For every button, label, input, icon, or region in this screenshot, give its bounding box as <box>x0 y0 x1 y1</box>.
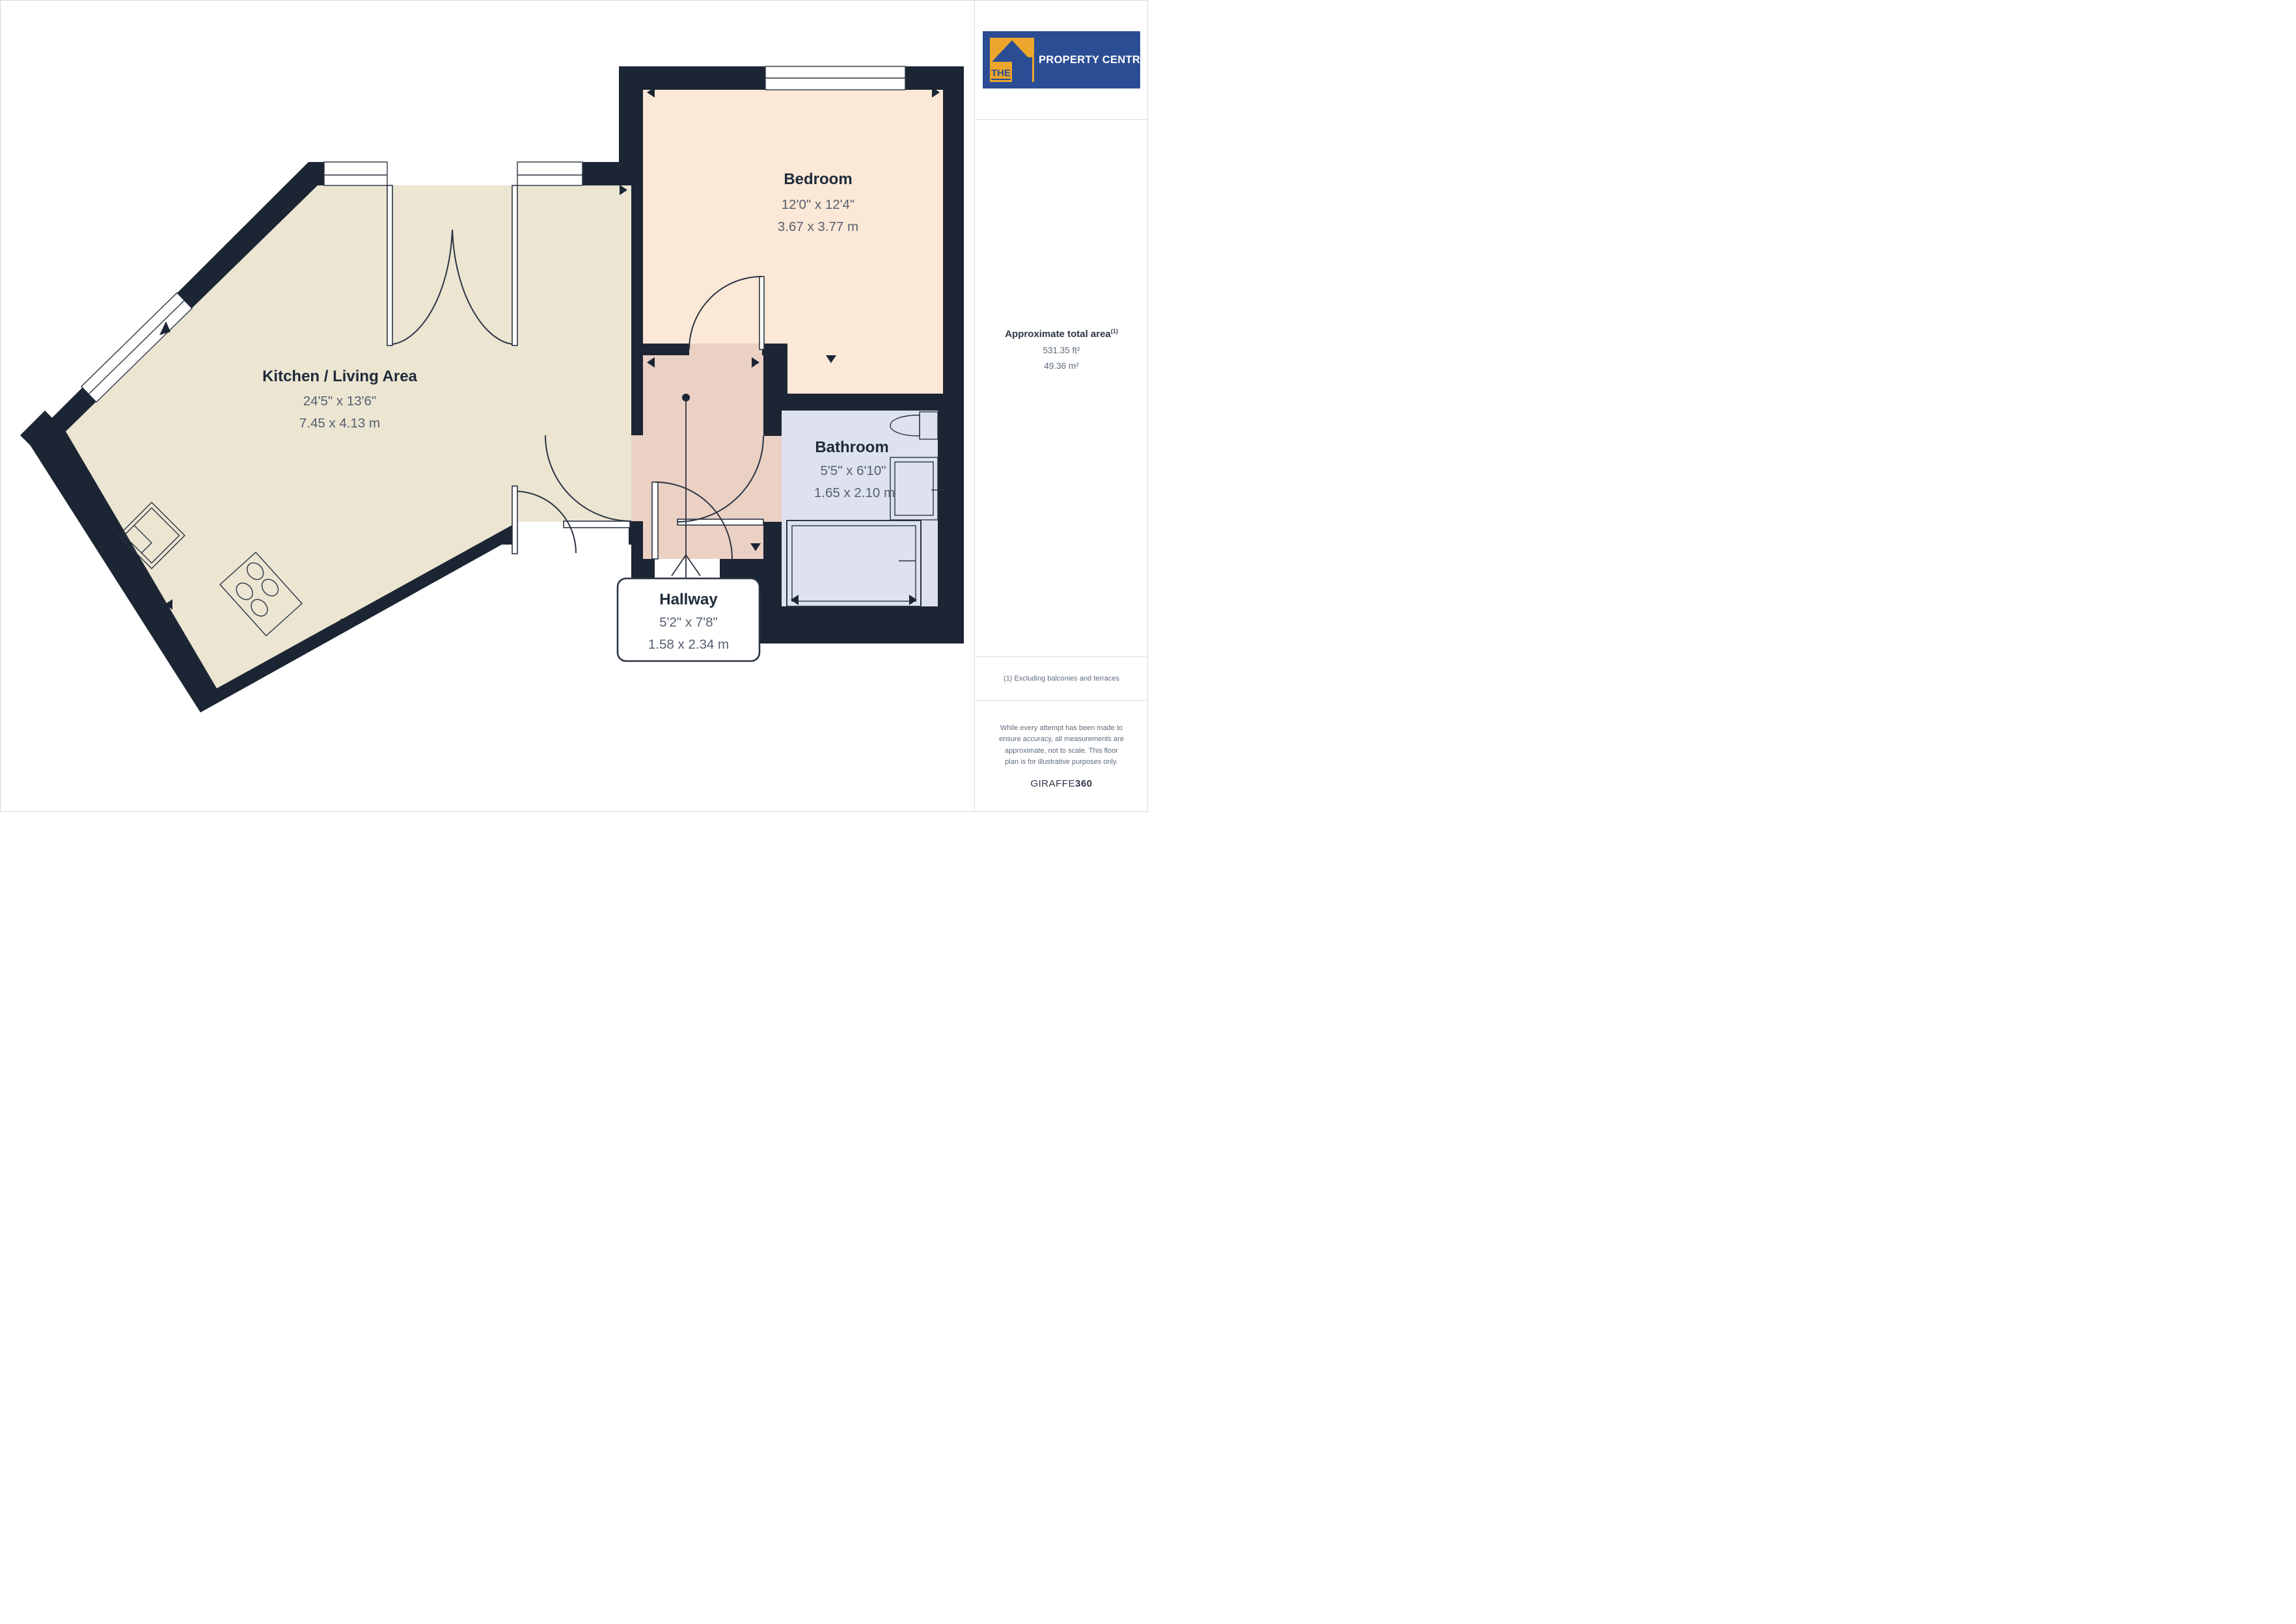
area-sqft: 531.35 ft² <box>1043 345 1080 355</box>
giraffe-suffix: 360 <box>1075 778 1093 789</box>
property-centre-logo: THE PROPERTY CENTRE <box>983 31 1140 88</box>
disclaimer-line: plan is for illustrative purposes only. <box>999 757 1124 768</box>
floorplan-page: Kitchen / Living Area 24'5" x 13'6" 7.45… <box>0 0 1148 812</box>
svg-text:Kitchen / Living Area: Kitchen / Living Area <box>262 368 417 385</box>
sidebar: THE PROPERTY CENTRE Approximate total ar… <box>974 1 1148 811</box>
area-sqm: 49.36 m² <box>1044 361 1078 371</box>
hallway-callout: Hallway 5'2" x 7'8" 1.58 x 2.34 m <box>618 578 759 661</box>
bathroom-label: Bathroom 5'5" x 6'10" 1.65 x 2.10 m <box>814 439 895 500</box>
bedroom-window <box>765 66 905 90</box>
giraffe360-logo: GIRAFFE360 <box>1030 778 1092 789</box>
note-cell: (1) Excluding balconies and terraces <box>975 657 1148 701</box>
kitchen-window-left <box>324 162 387 185</box>
svg-text:5'5" x 6'10": 5'5" x 6'10" <box>820 463 886 478</box>
room-hallway-floor <box>643 355 763 559</box>
logo-cell: THE PROPERTY CENTRE <box>975 1 1148 120</box>
svg-text:7.45 x 4.13 m: 7.45 x 4.13 m <box>299 416 380 431</box>
svg-text:1.58 x 2.34 m: 1.58 x 2.34 m <box>648 637 729 652</box>
svg-text:12'0" x 12'4": 12'0" x 12'4" <box>782 197 854 212</box>
svg-text:Bedroom: Bedroom <box>784 170 852 188</box>
logo-the-text: THE <box>991 68 1011 81</box>
logo-house-body-icon <box>1012 57 1032 82</box>
svg-text:24'5" x 13'6": 24'5" x 13'6" <box>303 394 376 409</box>
disclaimer-text: While every attempt has been made to ens… <box>999 723 1124 767</box>
area-superscript: (1) <box>1111 328 1118 334</box>
svg-text:Hallway: Hallway <box>659 591 718 608</box>
disclaimer-line: approximate, not to scale. This floor <box>999 746 1124 757</box>
svg-text:1.65 x 2.10 m: 1.65 x 2.10 m <box>814 485 895 500</box>
area-title: Approximate total area(1) <box>1005 328 1118 340</box>
patio-door-opening <box>387 162 517 185</box>
kitchen-doorway <box>631 435 643 521</box>
area-title-text: Approximate total area <box>1005 329 1111 340</box>
bathroom-doorway <box>763 436 782 522</box>
disclaimer-cell: While every attempt has been made to ens… <box>975 701 1148 811</box>
svg-text:5'2" x 7'8": 5'2" x 7'8" <box>659 615 718 630</box>
kitchen-window-right <box>517 162 582 185</box>
excluding-note: (1) Excluding balconies and terraces <box>1004 675 1119 683</box>
giraffe-prefix: GIRAFFE <box>1030 778 1075 789</box>
logo-house-icon: THE <box>990 38 1034 82</box>
svg-text:3.67 x 3.77 m: 3.67 x 3.77 m <box>778 219 858 234</box>
bedroom-doorway <box>689 344 762 355</box>
disclaimer-line: ensure accuracy, all measurements are <box>999 734 1124 745</box>
front-door-opening <box>655 559 720 580</box>
area-cell: Approximate total area(1) 531.35 ft² 49.… <box>975 120 1148 657</box>
disclaimer-line: While every attempt has been made to <box>999 723 1124 734</box>
svg-text:Bathroom: Bathroom <box>815 439 888 456</box>
bedroom-label: Bedroom 12'0" x 12'4" 3.67 x 3.77 m <box>778 170 858 234</box>
logo-wordmark: PROPERTY CENTRE <box>1039 54 1147 66</box>
